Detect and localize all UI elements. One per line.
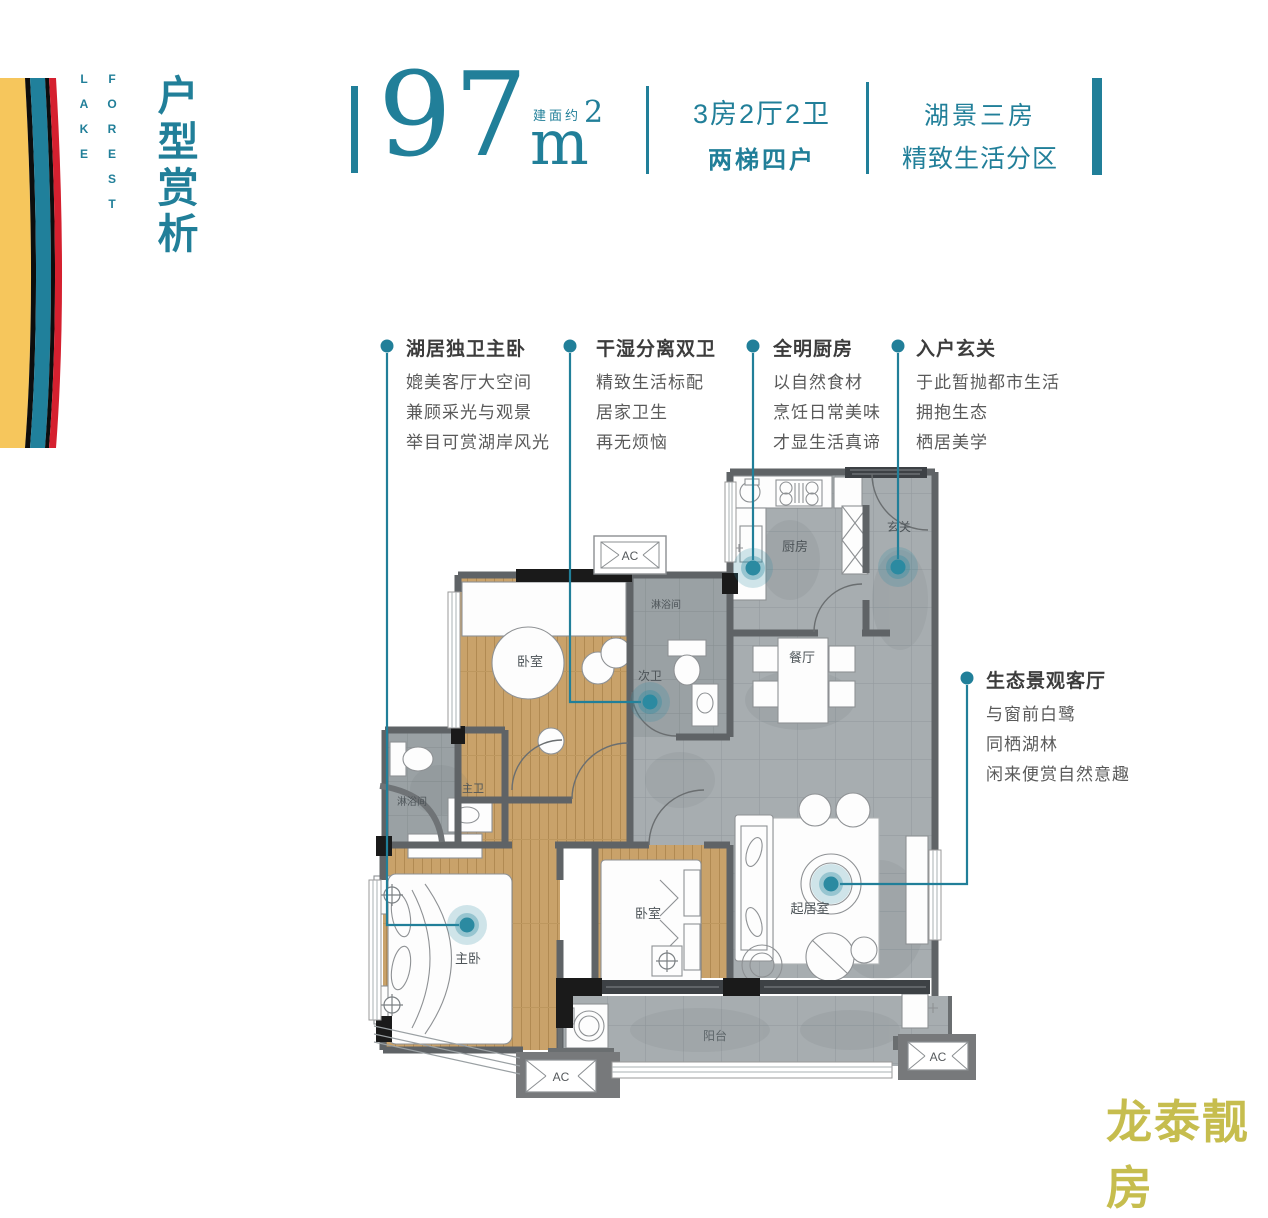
note-line: 精致生活标配 [596, 368, 716, 398]
tagline-line2: 精致生活分区 [878, 139, 1082, 175]
ac-label-top: AC [622, 549, 639, 563]
area-exponent: 2 [584, 98, 603, 128]
ac-label-right: AC [930, 1050, 947, 1064]
label-second-bath: 次卫 [638, 669, 662, 683]
label-master-bath: 主卫 [462, 782, 484, 795]
note-master-bedroom: 湖居独卫主卧 媲美客厅大空间 兼顾采光与观景 举目可赏湖岸风光 [406, 334, 550, 458]
note-title: 入户玄关 [916, 334, 1060, 361]
label-living: 起居室 [790, 901, 829, 916]
note-line: 以自然食材 [773, 368, 881, 398]
note-kitchen: 全明厨房 以自然食材 烹饪日常美味 才显生活真谛 [773, 334, 881, 458]
label-balcony: 阳台 [703, 1028, 727, 1043]
brand-word-forest: FOREST [105, 72, 119, 222]
area-accent-bar [351, 86, 358, 173]
note-line: 烹饪日常美味 [773, 398, 881, 428]
note-line: 栖居美学 [916, 428, 1060, 458]
note-line: 同栖湖林 [986, 730, 1130, 760]
brand-stripe [0, 78, 62, 448]
label-bedroom-top: 卧室 [517, 654, 543, 669]
label-dining: 餐厅 [789, 650, 815, 665]
header-divider-1 [646, 86, 649, 174]
header-accent-bar [1092, 78, 1102, 175]
label-shower-master: 淋浴间 [397, 795, 427, 808]
note-line: 与窗前白鹭 [986, 700, 1130, 730]
note-title: 全明厨房 [773, 334, 881, 361]
note-double-bath: 干湿分离双卫 精致生活标配 居家卫生 再无烦恼 [596, 334, 716, 458]
note-line: 再无烦恼 [596, 428, 716, 458]
label-shower-top: 淋浴间 [651, 598, 681, 611]
label-kitchen: 厨房 [782, 539, 808, 554]
watermark-logo: 龙泰靓房 [1106, 1086, 1268, 1218]
note-foyer: 入户玄关 于此暂抛都市生活 拥抱生态 栖居美学 [916, 334, 1060, 458]
spec-elevators: 两梯四户 [682, 140, 842, 175]
label-bedroom-mid: 卧室 [635, 906, 661, 921]
ac-label-left: AC [553, 1070, 570, 1084]
label-master-bedroom: 主卧 [455, 951, 481, 966]
note-line: 居家卫生 [596, 398, 716, 428]
note-living-room: 生态景观客厅 与窗前白鹭 同栖湖林 闲来便赏自然意趣 [986, 666, 1130, 790]
tagline-line1: 湖景三房 [878, 96, 1082, 132]
tagline-block: 湖景三房 精致生活分区 [878, 96, 1082, 175]
note-line: 才显生活真谛 [773, 428, 881, 458]
brand-word-lake: LAKE [77, 72, 91, 172]
note-line: 拥抱生态 [916, 398, 1060, 428]
area-unit: m [530, 112, 589, 174]
area-value: 97 [378, 58, 530, 174]
spec-block: 3房2厅2卫 两梯四户 [682, 92, 842, 175]
page-title: 户型赏析 [144, 74, 204, 258]
spec-rooms: 3房2厅2卫 [682, 92, 842, 131]
note-title: 湖居独卫主卧 [406, 334, 550, 361]
note-title: 干湿分离双卫 [596, 334, 716, 361]
note-line: 闲来便赏自然意趣 [986, 760, 1130, 790]
note-line: 举目可赏湖岸风光 [406, 428, 550, 458]
note-line: 于此暂抛都市生活 [916, 368, 1060, 398]
note-line: 媲美客厅大空间 [406, 368, 550, 398]
note-title: 生态景观客厅 [986, 666, 1130, 693]
note-line: 兼顾采光与观景 [406, 398, 550, 428]
header-divider-2 [866, 82, 869, 174]
